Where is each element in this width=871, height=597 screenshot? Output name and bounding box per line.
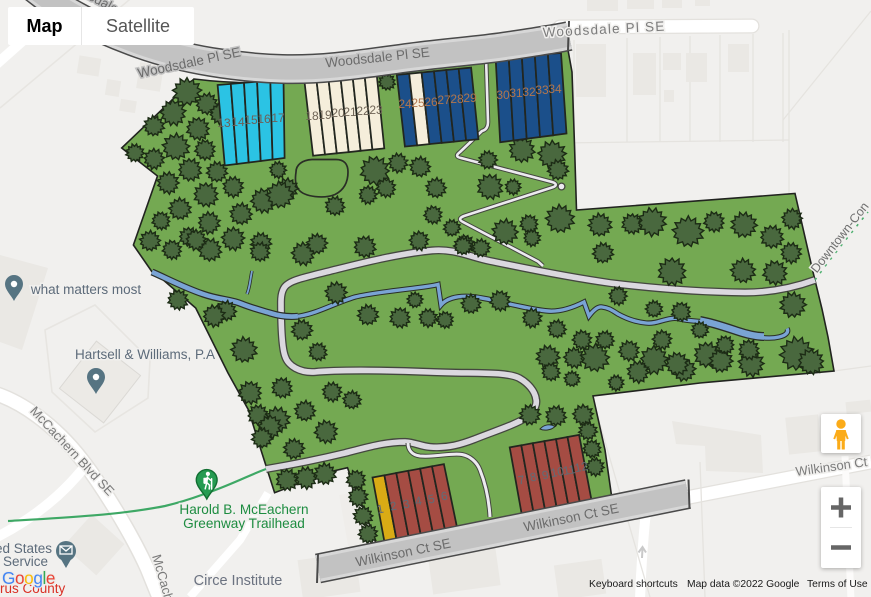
svg-text:25: 25 — [411, 96, 425, 110]
svg-text:23: 23 — [369, 103, 383, 117]
svg-text:Terms of Use: Terms of Use — [807, 579, 868, 590]
svg-text:16: 16 — [257, 112, 271, 126]
svg-text:33: 33 — [535, 83, 549, 97]
svg-text:what matters most: what matters most — [30, 282, 142, 297]
svg-text:31: 31 — [509, 86, 523, 100]
svg-text:29: 29 — [463, 91, 477, 105]
svg-text:26: 26 — [424, 95, 438, 109]
svg-text:24: 24 — [398, 97, 412, 111]
svg-text:14: 14 — [231, 115, 245, 129]
svg-text:Circe Institute: Circe Institute — [194, 573, 283, 589]
svg-text:Harold B. McEachern: Harold B. McEachern — [179, 502, 308, 517]
svg-text:18: 18 — [305, 109, 319, 123]
svg-text:Map data ©2022 Google: Map data ©2022 Google — [687, 579, 800, 590]
svg-text:32: 32 — [522, 85, 536, 99]
svg-text:Keyboard shortcuts: Keyboard shortcuts — [589, 579, 678, 590]
svg-text:28: 28 — [450, 92, 464, 106]
svg-text:l Service: l Service — [0, 554, 48, 569]
svg-text:Hartsell & Williams, P.A: Hartsell & Williams, P.A — [75, 347, 215, 362]
svg-text:34: 34 — [548, 82, 562, 96]
svg-text:30: 30 — [496, 88, 510, 102]
svg-text:27: 27 — [437, 93, 451, 107]
svg-text:Greenway Trailhead: Greenway Trailhead — [183, 516, 305, 531]
svg-text:15: 15 — [244, 113, 258, 127]
svg-text:19: 19 — [318, 108, 332, 122]
svg-text:Downtown-Con: Downtown-Con — [808, 200, 871, 276]
svg-text:17: 17 — [271, 111, 285, 125]
svg-text:Google: Google — [2, 568, 55, 588]
svg-text:21: 21 — [343, 105, 357, 119]
svg-text:13: 13 — [217, 116, 231, 130]
svg-text:22: 22 — [356, 104, 370, 118]
